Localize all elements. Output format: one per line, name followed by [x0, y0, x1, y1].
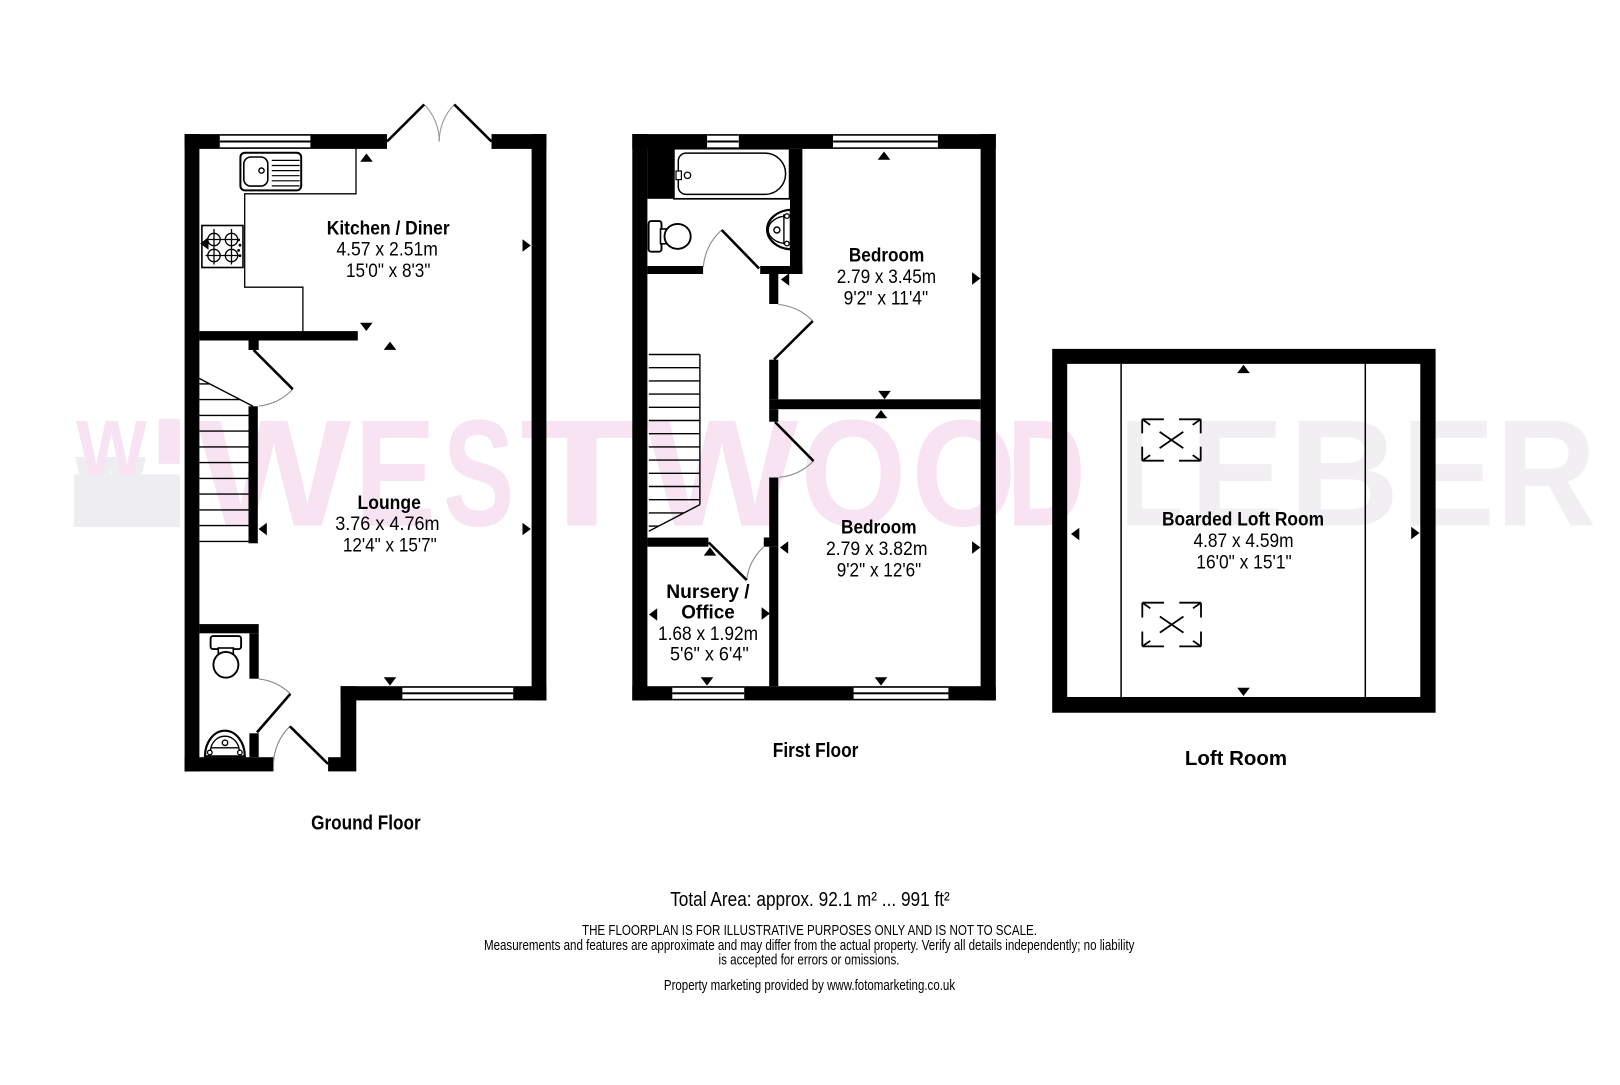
svg-text:W: W [76, 404, 147, 493]
svg-text:9'2" x 12'6": 9'2" x 12'6" [837, 560, 922, 582]
svg-text:S: S [443, 389, 514, 559]
svg-text:W: W [197, 389, 352, 559]
svg-text:3.76 x 4.76m: 3.76 x 4.76m [335, 513, 439, 535]
svg-text:THE FLOORPLAN IS FOR ILLUSTRAT: THE FLOORPLAN IS FOR ILLUSTRATIVE PURPOS… [582, 923, 1037, 939]
svg-text:O: O [912, 389, 1017, 559]
svg-text:16'0" x 15'1": 16'0" x 15'1" [1196, 551, 1291, 573]
svg-text:First Floor: First Floor [773, 740, 859, 762]
svg-text:Kitchen / Diner: Kitchen / Diner [327, 218, 450, 240]
svg-text:L: L [1120, 389, 1183, 559]
svg-text:2.79 x 3.45m: 2.79 x 3.45m [837, 266, 936, 288]
svg-text:Boarded Loft Room: Boarded Loft Room [1162, 508, 1324, 530]
svg-text:Total Area: approx. 92.1 m² ..: Total Area: approx. 92.1 m² ... 991 ft² [670, 889, 950, 911]
svg-text:Loft Room: Loft Room [1185, 748, 1287, 770]
svg-text:B: B [1288, 389, 1399, 559]
svg-text:4.57 x 2.51m: 4.57 x 2.51m [336, 239, 438, 261]
svg-text:Bedroom: Bedroom [841, 516, 917, 538]
svg-text:Bedroom: Bedroom [849, 245, 925, 267]
svg-text:Lounge: Lounge [358, 492, 421, 514]
svg-text:4.87 x 4.59m: 4.87 x 4.59m [1194, 530, 1294, 552]
svg-text:12'4" x 15'7": 12'4" x 15'7" [343, 534, 437, 556]
svg-text:R: R [1496, 389, 1596, 559]
svg-text:is accepted for errors or omis: is accepted for errors or omissions. [719, 953, 900, 969]
svg-text:2.79 x 3.82m: 2.79 x 3.82m [826, 538, 928, 560]
svg-text:Nursery /: Nursery / [666, 581, 750, 603]
svg-text:5'6" x 6'4": 5'6" x 6'4" [670, 643, 749, 665]
svg-text:1.68 x 1.92m: 1.68 x 1.92m [658, 623, 758, 645]
svg-text:Property marketing provided by: Property marketing provided by www.fotom… [664, 978, 956, 994]
svg-text:Ground Floor: Ground Floor [311, 813, 421, 835]
svg-text:9'2" x 11'4": 9'2" x 11'4" [844, 287, 929, 309]
svg-text:15'0" x 8'3": 15'0" x 8'3" [346, 260, 431, 282]
svg-text:Office: Office [681, 601, 735, 623]
